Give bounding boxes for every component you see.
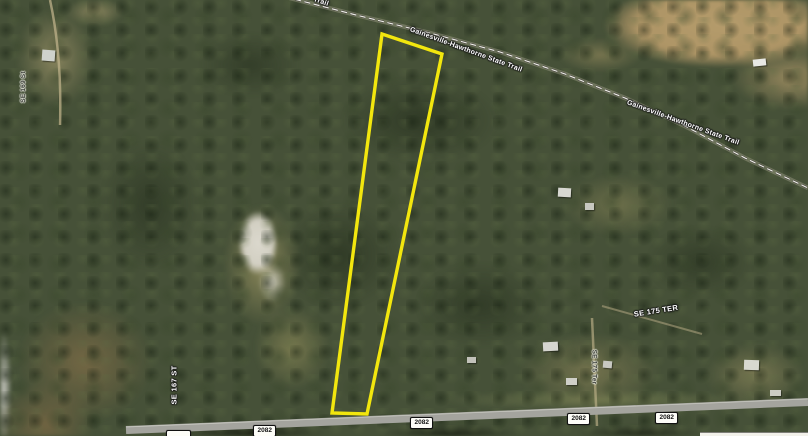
street-label-se-175-ter-lower: SE 175 Ter <box>590 350 597 385</box>
building-roof <box>558 188 571 198</box>
dirt-road <box>50 0 60 125</box>
route-shield-2082: 2082 <box>410 417 433 429</box>
aerial-map: Trail Gainesville-Hawthorne State Trail … <box>0 0 808 436</box>
route-shield-2082: 2082 <box>253 425 276 436</box>
street-label-se-169-st: SE 169 St <box>21 71 28 102</box>
building-roof <box>585 203 594 210</box>
building-roof <box>42 50 56 62</box>
route-shield-partial <box>166 430 191 436</box>
route-shield-2082: 2082 <box>567 413 590 425</box>
road-edge-line <box>126 399 808 427</box>
building-roof <box>744 360 759 371</box>
street-label-se-167-st: SE 167 ST <box>170 366 178 405</box>
building-roof <box>566 378 577 385</box>
road-2082 <box>126 402 808 430</box>
building-roof <box>603 361 613 369</box>
building-roof <box>753 58 767 66</box>
parcel-boundary <box>332 34 442 414</box>
route-shield-2082: 2082 <box>655 412 678 424</box>
map-vector-overlay <box>0 0 808 436</box>
building-roof <box>543 342 558 352</box>
building-roof <box>770 390 781 396</box>
cutoff-label-box <box>700 432 808 436</box>
building-roof <box>467 357 476 363</box>
